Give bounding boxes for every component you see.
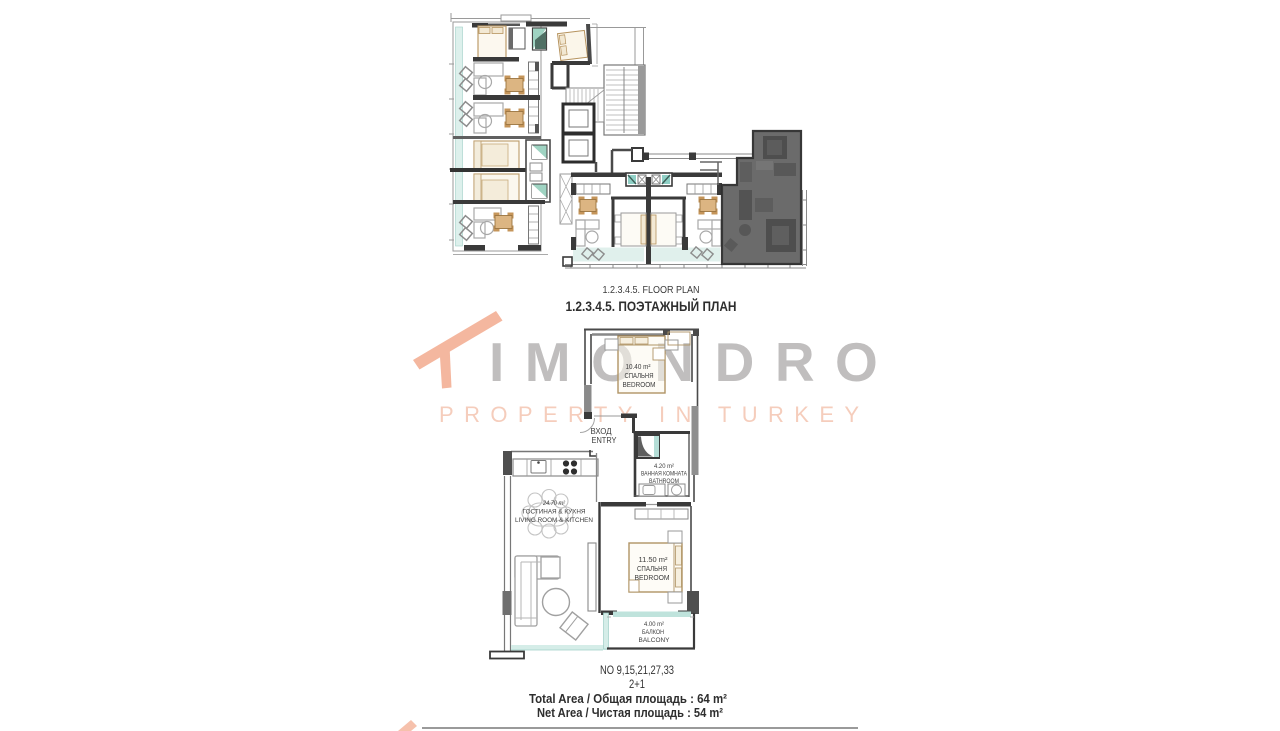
svg-text:1.2.3.4.5. ПОЭТАЖНЫЙ ПЛАН: 1.2.3.4.5. ПОЭТАЖНЫЙ ПЛАН	[566, 297, 737, 314]
svg-text:IMONDRO: IMONDRO	[489, 331, 898, 393]
svg-text:BEDROOM: BEDROOM	[635, 573, 670, 582]
svg-text:ВХОД: ВХОД	[591, 427, 613, 436]
svg-text:БАЛКОН: БАЛКОН	[642, 629, 664, 636]
svg-text:СПАЛЬНЯ: СПАЛЬНЯ	[637, 564, 667, 573]
svg-text:Net Area / Чистая площадь : 54: Net Area / Чистая площадь : 54 m²	[537, 706, 723, 720]
svg-text:BALCONY: BALCONY	[639, 637, 670, 644]
svg-text:NO 9,15,21,27,33: NO 9,15,21,27,33	[600, 663, 674, 677]
svg-text:1.2.3.4.5. FLOOR PLAN: 1.2.3.4.5. FLOOR PLAN	[603, 284, 700, 296]
svg-text:11.50 m²: 11.50 m²	[639, 557, 669, 564]
svg-text:24.70 m²: 24.70 m²	[542, 500, 566, 507]
svg-text:ВАННАЯ КОМНАТА: ВАННАЯ КОМНАТА	[641, 471, 688, 478]
svg-text:ГОСТИНАЯ & КУХНЯ: ГОСТИНАЯ & КУХНЯ	[523, 509, 586, 516]
svg-text:Total Area / Общая площадь :: Total Area / Общая площадь : 64 m²	[529, 692, 727, 706]
svg-text:BEDROOM: BEDROOM	[623, 380, 656, 389]
svg-text:ENTRY: ENTRY	[592, 436, 618, 445]
svg-text:СПАЛЬНЯ: СПАЛЬНЯ	[625, 371, 654, 380]
svg-text:PROPERTY IN TURKEY: PROPERTY IN TURKEY	[439, 402, 870, 427]
svg-text:10.40 m²: 10.40 m²	[626, 364, 652, 371]
svg-text:4.00 m²: 4.00 m²	[644, 621, 665, 628]
svg-text:2+1: 2+1	[629, 677, 645, 691]
svg-text:4.20 m²: 4.20 m²	[654, 463, 674, 470]
svg-text:LIVING ROOM & KITCHEN: LIVING ROOM & KITCHEN	[515, 517, 593, 524]
